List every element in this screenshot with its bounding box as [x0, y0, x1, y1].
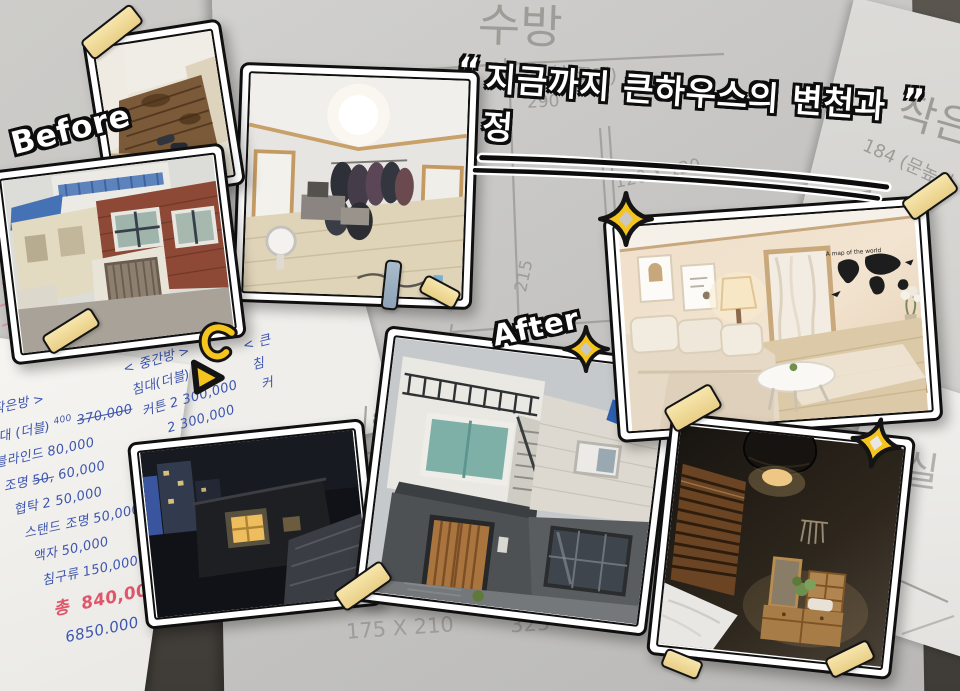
- cream-house-window: [24, 234, 48, 263]
- title-open-quote: “: [456, 50, 481, 91]
- sparkle-doodle-1: [598, 190, 654, 248]
- sparkle-doodle-3: [845, 411, 907, 475]
- title-close-quote: ”: [901, 81, 926, 122]
- distant-building: [157, 461, 198, 534]
- plan-kitchen-label: 수방: [477, 0, 564, 57]
- collage-canvas: { "title": { "open_quote": "\u201c", "te…: [0, 0, 960, 691]
- dim-window: [282, 516, 300, 532]
- door-plaque: [497, 537, 508, 553]
- wood-blinds: [670, 464, 748, 596]
- photo-before-room: [232, 62, 480, 310]
- after-livingroom-scene: A map of the world: [612, 205, 934, 434]
- before-room-scene: [241, 71, 471, 301]
